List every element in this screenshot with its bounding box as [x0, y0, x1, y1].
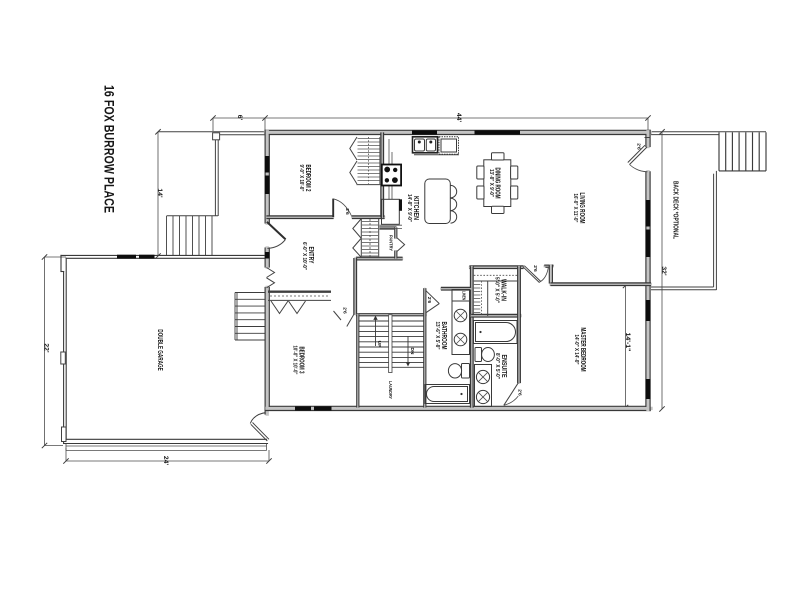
svg-text:6': 6' [236, 115, 243, 121]
svg-text:DN: DN [409, 348, 415, 355]
svg-text:2'6: 2'6 [342, 307, 348, 314]
svg-text:PANTRY: PANTRY [388, 235, 394, 252]
svg-text:BEDROOM 3: BEDROOM 3 [298, 347, 305, 374]
svg-text:16'-0" X 11'-0": 16'-0" X 11'-0" [572, 194, 578, 223]
svg-text:LINEN: LINEN [461, 291, 467, 300]
svg-text:BACK DECK *OPTIONAL: BACK DECK *OPTIONAL [671, 181, 678, 240]
svg-text:BEDROOM 2: BEDROOM 2 [304, 165, 311, 192]
svg-text:10'-0" X 10'-0": 10'-0" X 10'-0" [292, 346, 298, 375]
svg-text:WALK-IN: WALK-IN [500, 279, 507, 301]
svg-text:6'-0" X 10'-0": 6'-0" X 10'-0" [301, 242, 307, 270]
svg-text:32': 32' [660, 266, 667, 276]
svg-text:14'-1": 14'-1" [624, 333, 630, 352]
svg-text:14'-0" X 14'-0": 14'-0" X 14'-0" [573, 335, 579, 365]
svg-text:14': 14' [156, 188, 163, 198]
svg-text:LAUNDRY: LAUNDRY [387, 381, 393, 400]
svg-text:2'6: 2'6 [636, 143, 642, 150]
svg-text:KITCHEN: KITCHEN [412, 196, 419, 220]
svg-text:LIVING ROOM: LIVING ROOM [578, 193, 585, 224]
svg-text:2'6: 2'6 [344, 208, 350, 215]
svg-text:13'-0" X 9'-0": 13'-0" X 9'-0" [488, 169, 494, 197]
svg-text:ENSUITE: ENSUITE [500, 355, 507, 378]
svg-text:22': 22' [43, 343, 50, 353]
svg-text:2'6: 2'6 [426, 297, 432, 304]
svg-text:UP: UP [376, 341, 382, 348]
svg-text:16 FOX BURROW PLACE: 16 FOX BURROW PLACE [102, 85, 118, 213]
svg-text:8'-0" X 5'-0": 8'-0" X 5'-0" [494, 353, 500, 379]
svg-text:5'-0" X 5'-0": 5'-0" X 5'-0" [494, 277, 500, 303]
svg-text:24': 24' [162, 456, 169, 466]
svg-text:2'6: 2'6 [517, 389, 523, 396]
svg-text:ENTRY: ENTRY [307, 247, 314, 264]
svg-text:2'6: 2'6 [532, 265, 538, 272]
svg-text:14'-0" X 9'-0": 14'-0" X 9'-0" [406, 194, 412, 222]
svg-text:DOUBLE GARAGE: DOUBLE GARAGE [156, 329, 163, 371]
svg-text:MASTER BEDROOM: MASTER BEDROOM [579, 328, 586, 372]
svg-text:44': 44' [455, 113, 462, 123]
svg-text:9'-0" X 10'-0": 9'-0" X 10'-0" [298, 165, 304, 192]
svg-text:13'-6" X 5'-0": 13'-6" X 5'-0" [434, 322, 440, 350]
